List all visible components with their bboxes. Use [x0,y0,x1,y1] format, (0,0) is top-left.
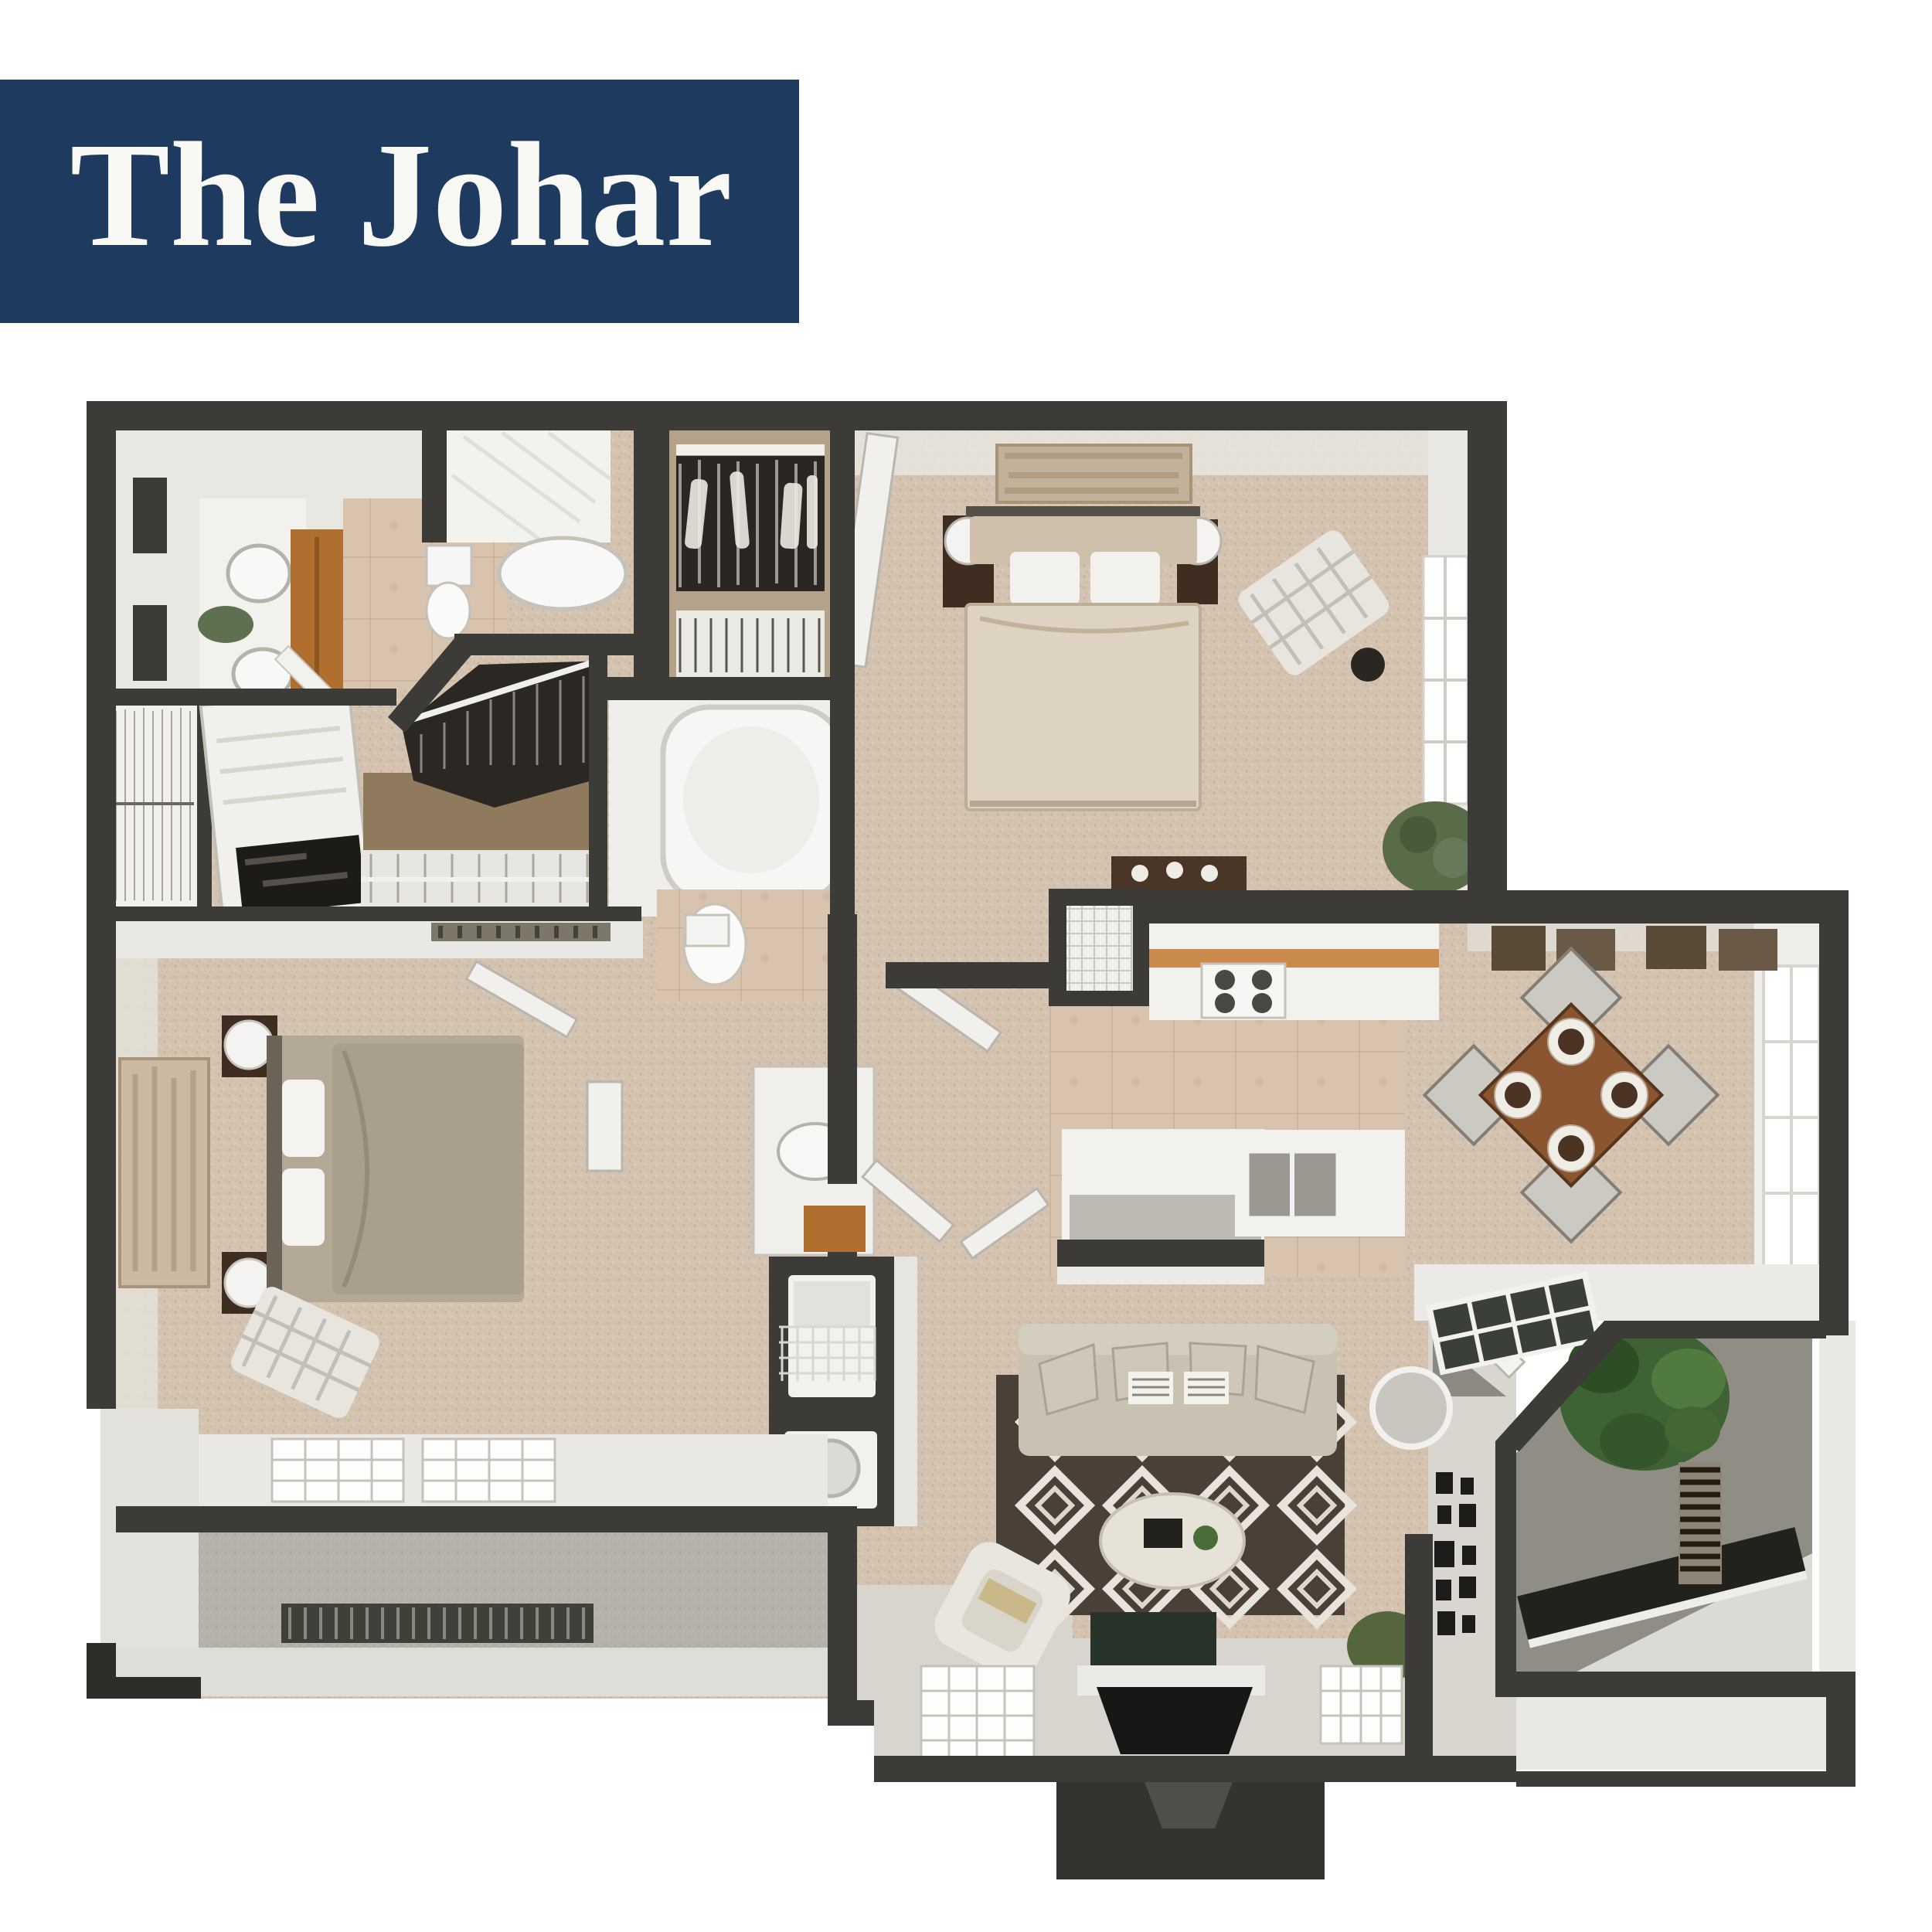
svg-text:The Johar: The Johar [70,111,733,277]
